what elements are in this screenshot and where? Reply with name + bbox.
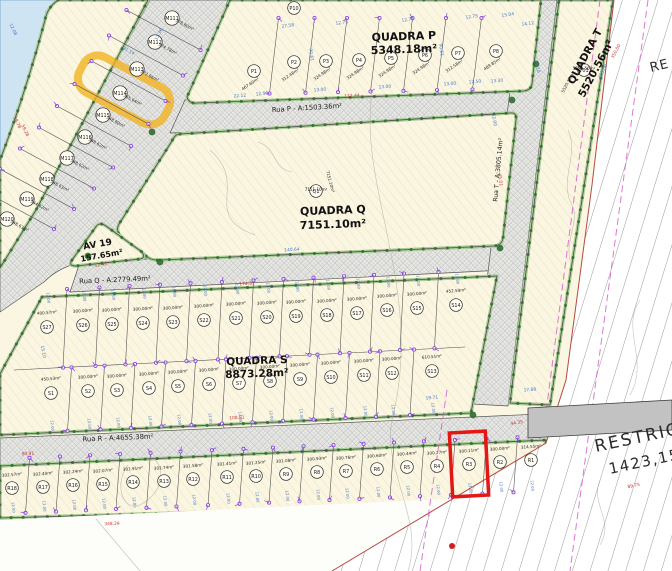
dimension-label: 19.71: [425, 394, 438, 401]
lot-label: P2: [291, 60, 297, 66]
lot-label: S22: [199, 318, 208, 324]
lot-label: S11: [359, 373, 368, 379]
lot-label: P4: [356, 58, 362, 64]
lot-label: R7: [343, 469, 350, 475]
tree-icon: [470, 412, 477, 419]
lot-label: S19: [291, 314, 300, 320]
dimension-label: 140.64: [284, 247, 300, 254]
lot-label: R8: [314, 470, 321, 476]
lot-label: R17: [38, 485, 48, 491]
dimension-label: 112.44: [344, 93, 360, 100]
plat-map-canvas[interactable]: P1467.60m²P2312.48m²P3324.98m²P4324.98m²…: [0, 0, 672, 571]
quadra-p-area: 5348.18m²: [370, 42, 437, 57]
lot-label: R5: [404, 465, 411, 471]
lot-label: S2: [85, 389, 91, 395]
lot-label: S4: [146, 386, 152, 392]
lot-label: R14: [128, 480, 138, 486]
tree-icon: [497, 245, 504, 252]
lot-label: P5: [388, 56, 394, 62]
lot-label: R15: [98, 482, 108, 488]
lot-label: S18: [322, 313, 331, 319]
lot-area: 7151.10m²: [305, 187, 328, 192]
quadra-q-name: QUADRA Q: [300, 203, 366, 218]
lot-label: S25: [107, 322, 116, 328]
dimension-label: 348.29: [104, 521, 120, 528]
lot-label: S15: [412, 306, 421, 312]
dimension-label: 22.12: [233, 93, 246, 100]
red-point-marker: [449, 543, 455, 549]
lot-label: S5: [175, 384, 181, 390]
lot-label: R10: [251, 474, 261, 480]
lot-label: R2: [497, 460, 504, 466]
lot-label: R9: [283, 472, 290, 478]
dimension-label: 90.91: [22, 451, 35, 458]
lot-label: R3: [466, 462, 473, 468]
lot-label: R4: [434, 464, 441, 470]
lot-label: S9: [297, 377, 303, 383]
lot-label: S24: [138, 321, 147, 327]
lot-label: P7: [455, 51, 461, 57]
lot-label: S26: [78, 323, 87, 329]
lot-label: S27: [42, 325, 51, 331]
lot-label: P8: [493, 49, 499, 55]
lot-label: R1: [528, 458, 535, 464]
dimension-label: 12.50: [255, 91, 268, 98]
dimension-label: 17.88: [523, 386, 536, 393]
lot-label: R13: [159, 479, 169, 485]
lot-label: R6: [374, 467, 381, 473]
lot-label: S17: [352, 311, 361, 317]
lot-label: P10: [289, 6, 298, 12]
lot-label: S3: [114, 388, 120, 394]
lot-label: S10: [326, 375, 335, 381]
lot-label: S20: [262, 315, 271, 321]
lot-label: R16: [68, 483, 78, 489]
tree-icon: [149, 129, 156, 136]
lot-label: P3: [323, 59, 329, 65]
lot-label: S14: [451, 303, 460, 309]
lot-label: S13: [427, 369, 436, 375]
lot-label: R12: [188, 477, 198, 483]
dimension-label: 174.31: [239, 281, 255, 288]
tree-icon: [157, 259, 164, 266]
lot-label: P1: [251, 69, 257, 75]
dimension-label: 13.00: [378, 84, 391, 91]
lot-label: S12: [387, 371, 396, 377]
lot-label: S21: [231, 316, 240, 322]
lot-label: R11: [222, 475, 232, 481]
lot-label: S8: [267, 379, 273, 385]
lot-label: S6: [206, 382, 212, 388]
dimension-label: 13.00: [313, 87, 326, 94]
dimension-label: 13.00: [443, 81, 456, 88]
lot-label: S1: [48, 391, 54, 397]
quadra-s-area: 8873.28m²: [225, 367, 289, 381]
dimension-label: 13.30: [490, 78, 503, 85]
quadra-s-name: QUADRA S: [226, 354, 288, 368]
dimension-label: 108.81: [229, 415, 245, 422]
lot-label: R18: [7, 486, 17, 492]
lot-label: S7: [236, 381, 242, 387]
lot-label: S23: [168, 320, 177, 326]
dimension-label: 12.50: [468, 79, 481, 86]
lot-label: S16: [382, 308, 391, 314]
tree-icon: [509, 97, 516, 104]
quadra-q-area: 7151.10m²: [299, 217, 366, 232]
